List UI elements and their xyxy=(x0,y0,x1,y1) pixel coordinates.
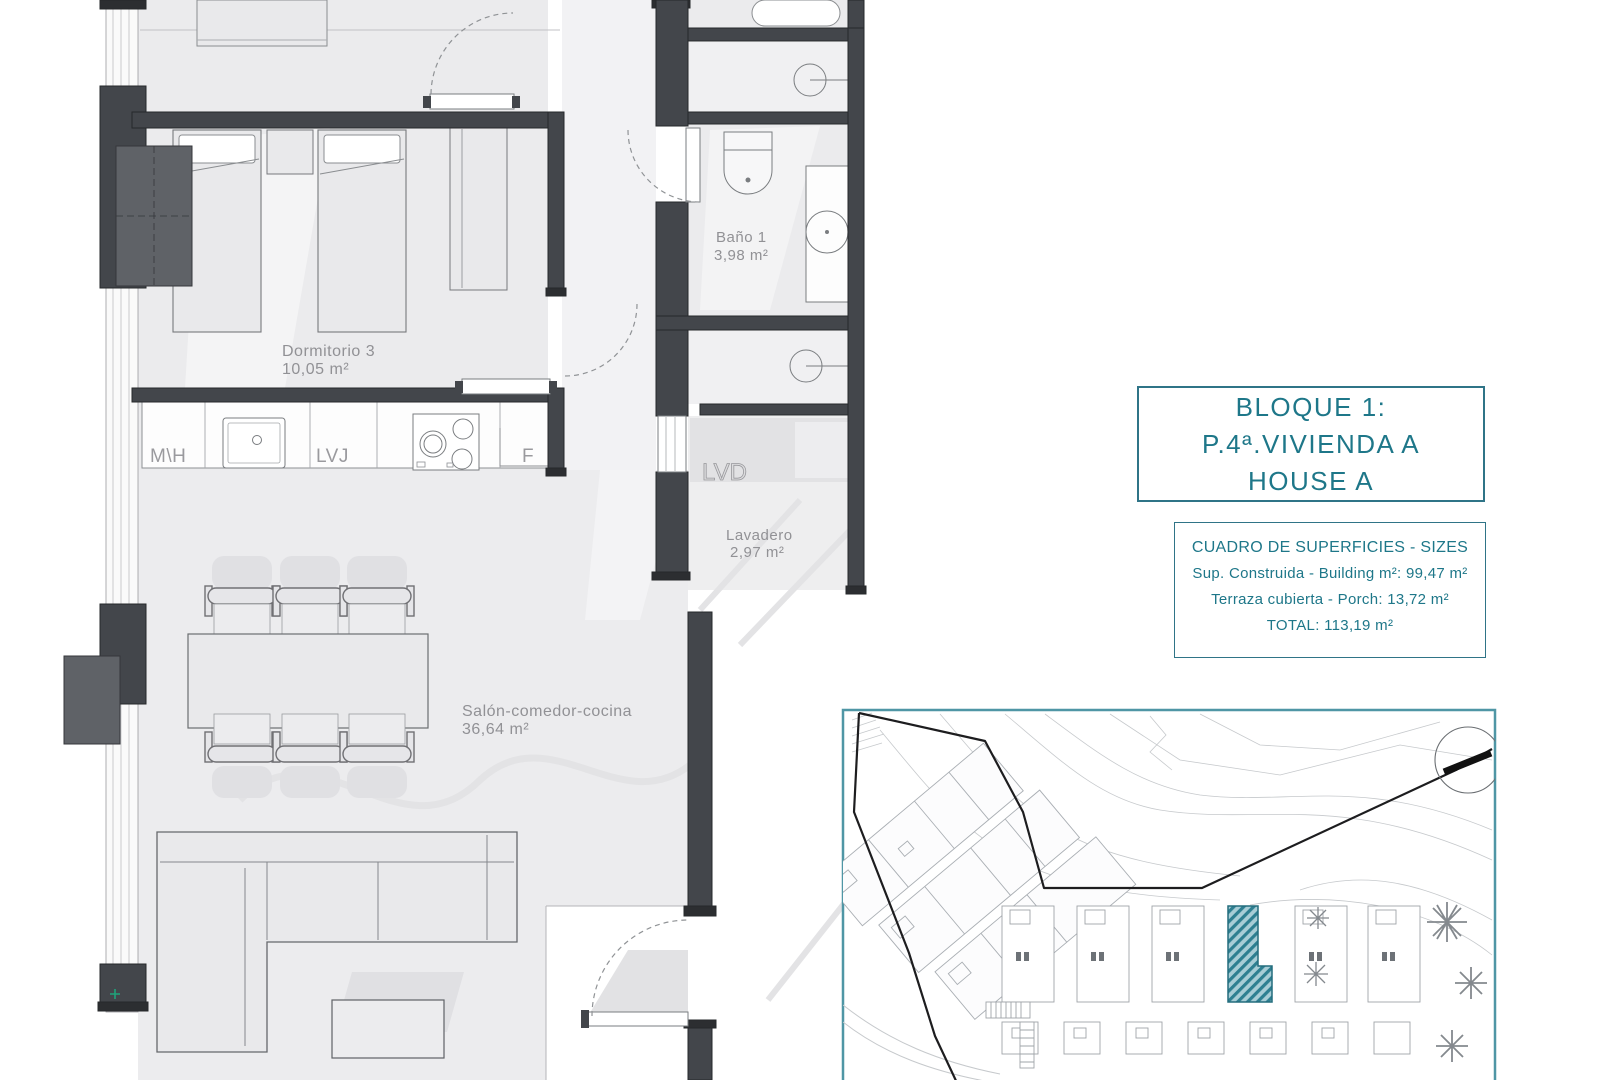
sizes-table: CUADRO DE SUPERFICIES - SIZES Sup. Const… xyxy=(1174,522,1486,658)
room-label-dormitorio: Dormitorio 3 xyxy=(282,343,375,360)
block-info-box: BLOQUE 1: P.4ª.VIVIENDA A HOUSE A xyxy=(1137,386,1485,502)
toilet-icon xyxy=(724,132,772,194)
room-area-lavadero: 2,97 m² xyxy=(730,544,784,561)
kitchen-counter xyxy=(142,402,562,470)
vanity-basin-icon xyxy=(806,166,848,302)
room-label-lavadero: Lavadero xyxy=(726,527,793,544)
pillar xyxy=(64,656,120,744)
dining-chairs-top xyxy=(205,586,414,634)
block-house: HOUSE A xyxy=(1139,463,1483,500)
bed-2 xyxy=(318,130,406,332)
sizes-row-total: TOTAL: 113,19 m² xyxy=(1175,613,1485,639)
window-laundry xyxy=(658,416,686,472)
block-title: BLOQUE 1: xyxy=(1139,389,1483,426)
room-area-dormitorio: 10,05 m² xyxy=(282,361,349,378)
label-dishwasher: LVJ xyxy=(316,446,349,467)
room-area-bano: 3,98 m² xyxy=(714,247,768,264)
coffee-table xyxy=(332,1000,444,1058)
bathtub-icon xyxy=(752,0,840,26)
washer-side xyxy=(795,422,848,478)
sizes-title: CUADRO DE SUPERFICIES - SIZES xyxy=(1175,535,1485,561)
room-area-salon: 36,64 m² xyxy=(462,721,529,738)
sink-icon xyxy=(223,418,285,468)
wardrobe-top xyxy=(197,0,327,46)
label-washer: LVD xyxy=(702,459,747,486)
room-label-salon: Salón-comedor-cocina xyxy=(462,703,632,720)
cooktop-icon xyxy=(413,414,479,470)
label-microwave: M\H xyxy=(150,446,186,467)
block-subtitle: P.4ª.VIVIENDA A xyxy=(1139,426,1483,463)
site-plan xyxy=(823,710,1501,1080)
sizes-row-building: Sup. Construida - Building m²: 99,47 m² xyxy=(1175,561,1485,587)
sizes-row-porch: Terraza cubierta - Porch: 13,72 m² xyxy=(1175,587,1485,613)
nightstand xyxy=(267,130,313,174)
dining-set xyxy=(188,556,428,798)
wardrobe-right xyxy=(450,127,507,290)
floorplan-page: Dormitorio 3 10,05 m² Baño 1 3,98 m² Lav… xyxy=(0,0,1620,1080)
label-fridge: F xyxy=(522,446,534,467)
dining-chairs-bottom xyxy=(205,714,414,762)
bedroom-top-wall xyxy=(132,112,564,128)
room-label-bano: Baño 1 xyxy=(716,229,767,246)
